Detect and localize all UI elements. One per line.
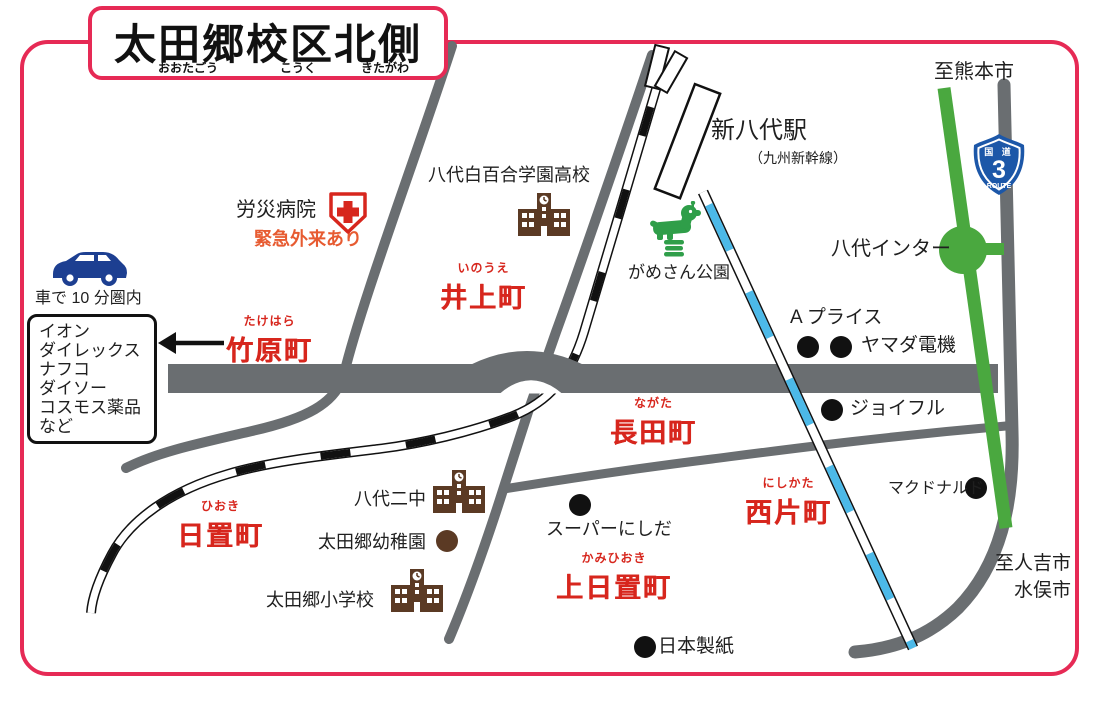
store-item: ダイソー <box>39 379 145 398</box>
a-price-dot <box>797 336 819 358</box>
town-name: 井上町 <box>440 276 527 315</box>
store-item: ダイレックス <box>39 341 145 360</box>
hospital-shield-icon <box>328 191 368 235</box>
station-name: 新八代駅 <box>711 118 807 144</box>
shield-route-text: ROUTE <box>987 183 1012 190</box>
title-furigana-1: おおたごう <box>158 59 218 76</box>
title-furigana-2: こうく <box>280 59 316 76</box>
town-name: 長田町 <box>610 411 697 450</box>
station-line: （九州新幹線） <box>749 151 847 166</box>
town-name: 竹原町 <box>226 329 313 368</box>
nippon-paper-dot <box>634 636 656 658</box>
store-item: イオン <box>39 322 145 341</box>
shinkansen-line <box>703 192 913 648</box>
town-label-inoue: いのうえ 井上町 <box>440 259 527 315</box>
park-spring-rider-icon <box>648 201 702 261</box>
map-title-box: 太田郷校区北側 おおたごう こうく きたがわ <box>88 6 448 80</box>
label-mcdonalds: マクドナルド <box>888 480 984 498</box>
joyful-dot <box>821 399 843 421</box>
store-item: コスモス薬品 <box>39 398 145 417</box>
town-furigana: たけはら <box>226 312 313 329</box>
label-joyful: ジョイフル <box>850 399 945 420</box>
kindergarten-dot <box>436 530 458 552</box>
yamada-denki-dot <box>830 336 852 358</box>
town-name: 上日置町 <box>556 566 672 605</box>
store-item: ナフコ <box>39 360 145 379</box>
label-yamada-denki: ヤマダ電機 <box>861 336 956 357</box>
super-nishida-dot <box>569 494 591 516</box>
label-kindergarten: 太田郷幼稚園 <box>318 533 426 553</box>
store-item: など <box>39 417 145 436</box>
nearby-stores-box: イオン ダイレックス ナフコ ダイソー コスモス薬品 など <box>27 314 157 444</box>
label-highschool: 八代白百合学園高校 <box>428 166 590 186</box>
highschool-icon <box>518 193 570 236</box>
town-furigana: ながた <box>610 394 697 411</box>
shield-number-text: 3 <box>992 156 1006 184</box>
label-junior-high: 八代二中 <box>354 490 426 510</box>
label-car-zone: 車で 10 分圏内 <box>35 290 142 308</box>
town-label-nagata: ながた 長田町 <box>610 394 697 450</box>
town-name: 日置町 <box>177 514 264 553</box>
route-3-shield-icon: 国 道 3 ROUTE <box>970 132 1028 198</box>
town-label-nishikata: にしかた 西片町 <box>745 474 832 530</box>
town-label-takehara: たけはら 竹原町 <box>226 312 313 368</box>
title-furigana-3: きたがわ <box>361 59 409 76</box>
town-furigana: かみひおき <box>556 549 672 566</box>
direction-hitoyoshi-line1: 至人吉市 <box>995 548 1071 575</box>
left-arrow-icon <box>158 330 226 356</box>
town-name: 西片町 <box>745 491 832 530</box>
label-hospital: 労災病院 <box>236 199 316 221</box>
elementary-school-icon <box>391 569 443 612</box>
town-furigana: いのうえ <box>440 259 527 276</box>
label-interchange: 八代インター <box>831 238 951 260</box>
label-super-nishida: スーパーにしだ <box>546 520 672 540</box>
direction-hitoyoshi: 至人吉市 水俣市 <box>995 548 1071 602</box>
label-elementary: 太田郷小学校 <box>266 591 374 611</box>
label-park: がめさん公園 <box>628 264 730 283</box>
town-label-kamihioki: かみひおき 上日置町 <box>556 549 672 605</box>
direction-kumamoto: 至熊本市 <box>934 55 1014 84</box>
road-west-diagonal <box>126 46 452 468</box>
town-furigana: にしかた <box>745 474 832 491</box>
car-icon <box>50 250 128 288</box>
station-symbol <box>645 45 720 198</box>
label-nippon-paper: 日本製紙 <box>658 637 734 658</box>
ota-go-district-map: 太田郷校区北側 おおたごう こうく きたがわ 至熊本市 至人吉市 水俣市 新八代… <box>0 0 1101 705</box>
junior-high-icon <box>433 470 485 513</box>
town-furigana: ひおき <box>177 497 264 514</box>
label-a-price: A プライス <box>790 308 882 329</box>
town-label-hioki: ひおき 日置町 <box>177 497 264 553</box>
direction-minamata-line2: 水俣市 <box>995 575 1071 602</box>
